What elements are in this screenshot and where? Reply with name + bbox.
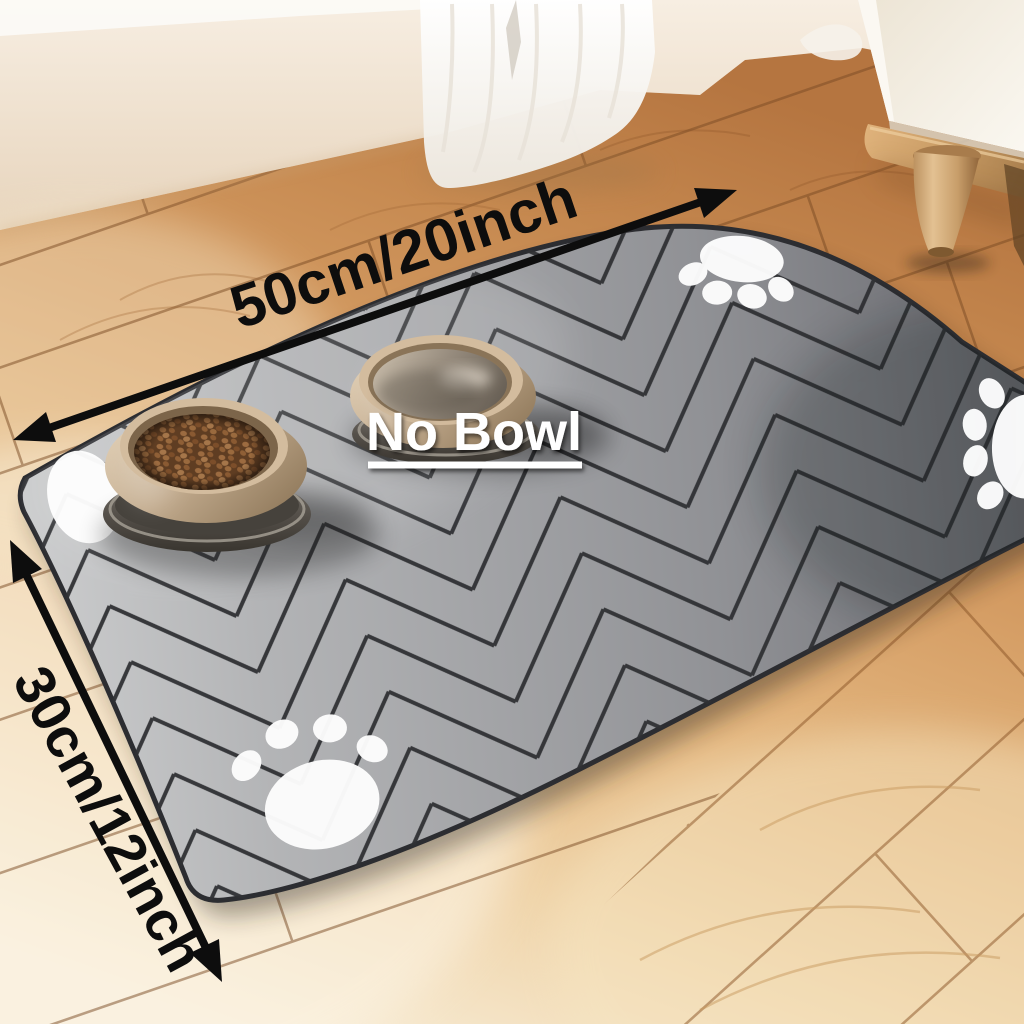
svg-text:No Bowl: No Bowl	[366, 402, 582, 462]
no-bowl-label: No Bowl	[366, 402, 582, 465]
product-photo-pet-feeding-mat: 50cm/20inch 30cm/12inch No Bowl	[0, 0, 1024, 1024]
scene: 50cm/20inch 30cm/12inch No Bowl	[0, 0, 1024, 1024]
